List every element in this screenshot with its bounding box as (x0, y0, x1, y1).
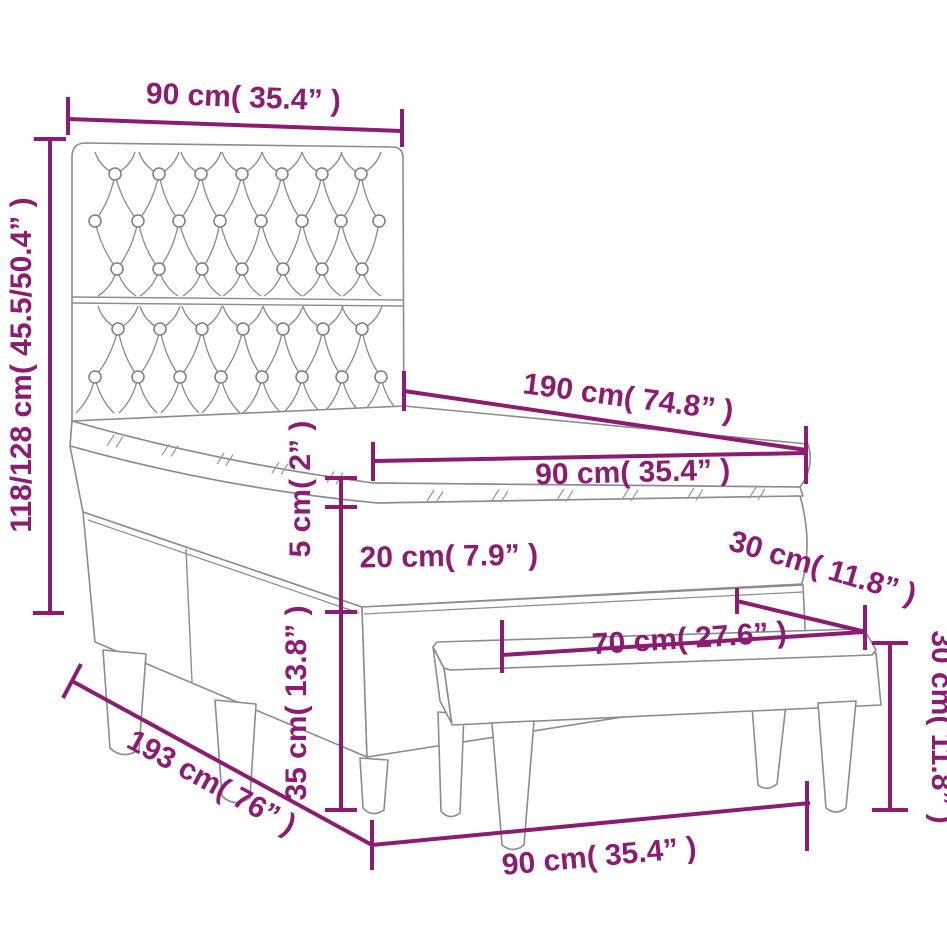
dimension-diagram: 90 cm( 35.4” ) 118/128 cm( 45.5/50.4” ) … (0, 0, 947, 947)
tuft-button (215, 371, 227, 383)
dim-bed-width-bottom-label: 90 cm( 35.4” ) (500, 831, 697, 882)
dim-tick (63, 664, 81, 698)
tuft-button (335, 215, 347, 227)
bed-leg (360, 758, 388, 814)
tuft-button (316, 168, 328, 180)
tuft-button (296, 215, 308, 227)
dim-base-height-label: 35 cm( 13.8” ) (280, 605, 313, 800)
tuft-button (214, 215, 226, 227)
tuft-button (355, 168, 367, 180)
tuft-button (375, 371, 387, 383)
tuft-button (256, 371, 268, 383)
tuft-button (277, 323, 289, 335)
tuft-button (153, 168, 165, 180)
tuft-button (336, 371, 348, 383)
tuft-button (196, 263, 208, 275)
dim-headboard-width-label: 90 cm( 35.4” ) (145, 77, 341, 117)
dim-topper-thickness-label: 5 cm( 2” ) (284, 421, 317, 558)
dim-headboard-height-label: 118/128 cm( 45.5/50.4” ) (5, 197, 38, 532)
dim-total-length-label: 193 cm( 76” ) (122, 724, 302, 842)
dim-bed-length-label: 190 cm( 74.8” ) (521, 367, 735, 427)
tuft-button (236, 263, 248, 275)
tuft-button (112, 323, 124, 335)
tuft-button (195, 168, 207, 180)
dim-mattress-thickness-label: 20 cm( 7.9” ) (359, 538, 538, 574)
dim-bench-height-label: 30 cm( 11.8” ) (925, 630, 947, 823)
tuft-button (89, 215, 101, 227)
tuft-button (154, 323, 166, 335)
dim-line (68, 119, 402, 131)
tuft-button (174, 371, 186, 383)
tuft-button (276, 168, 288, 180)
tuft-button (296, 371, 308, 383)
bed-leg (438, 712, 464, 817)
dim-line (372, 803, 810, 845)
tuft-button (373, 215, 385, 227)
tuft-button (356, 263, 368, 275)
tuft-button (89, 371, 101, 383)
tuft-button (132, 371, 144, 383)
tuft-button (356, 323, 368, 335)
tuft-button (196, 323, 208, 335)
tuft-button (111, 263, 123, 275)
diagram-canvas: 90 cm( 35.4” ) 118/128 cm( 45.5/50.4” ) … (0, 0, 947, 947)
headboard (72, 143, 404, 452)
tuft-button (173, 215, 185, 227)
tuft-button (236, 168, 248, 180)
dim-mattress-width-label: 90 cm( 35.4” ) (535, 453, 731, 491)
tuft-button (316, 263, 328, 275)
tuft-button (237, 323, 249, 335)
bench-rear-leg (752, 704, 786, 788)
tuft-button (109, 168, 121, 180)
bench-front-right-leg (818, 701, 856, 812)
tuft-button (132, 215, 144, 227)
tuft-button (317, 323, 329, 335)
tuft-button (255, 215, 267, 227)
tuft-button (277, 263, 289, 275)
tuft-button (153, 263, 165, 275)
